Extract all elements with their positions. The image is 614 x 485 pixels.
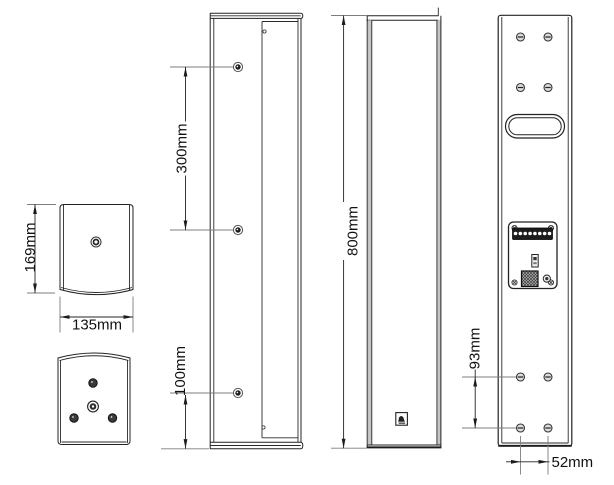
- side-back-panel: [262, 22, 298, 438]
- bottom-hole-icon: [89, 379, 97, 387]
- pilot-hole-icon: [262, 426, 265, 429]
- rear-screw-icon: [544, 33, 552, 41]
- mount-hole-icon: [91, 237, 101, 247]
- dim-135-label: 135mm: [72, 317, 122, 334]
- rear-screw-icon: [544, 84, 552, 92]
- top-view: 169mm 135mm: [22, 205, 133, 334]
- dim-100: 100mm: [172, 346, 189, 449]
- switch-connector: [532, 255, 538, 268]
- dim-93-label: 93mm: [467, 328, 484, 370]
- front-view: 800mm: [331, 8, 441, 449]
- connector-panel: [509, 222, 558, 289]
- front-right-wall: [437, 20, 441, 445]
- side-top-cap: [210, 13, 303, 18]
- dim-169-label: 169mm: [22, 222, 39, 272]
- rear-view: 93mm 52mm: [462, 15, 593, 474]
- dim-100-label: 100mm: [172, 346, 189, 396]
- rear-screw-icon: [517, 84, 525, 92]
- pilot-hole-icon: [263, 30, 266, 33]
- dim-800-label: 800mm: [345, 206, 362, 256]
- rear-screw-icon: [544, 424, 552, 432]
- dim-169: 169mm: [22, 205, 56, 294]
- logo-badge: [396, 413, 408, 426]
- bottom-hole-icon: [108, 414, 116, 422]
- rear-screw-icon: [544, 373, 552, 381]
- bottom-hole-icon: [70, 414, 78, 422]
- side-screw-icon: [233, 62, 242, 71]
- bottom-view: [58, 353, 130, 445]
- round-connector-icon: [543, 275, 550, 282]
- rear-screw-icon: [517, 373, 525, 381]
- panel-screw-icon: [512, 280, 517, 285]
- dim-300-label: 300mm: [174, 123, 191, 173]
- dim-800: 800mm: [342, 16, 362, 449]
- speakon-connector-icon: [522, 271, 539, 287]
- top-view-outline: [60, 205, 133, 295]
- rear-screw-icon: [517, 424, 525, 432]
- side-view: 300mm 100mm: [161, 13, 303, 449]
- dim-52-label: 52mm: [552, 454, 594, 471]
- dim-300: 300mm: [174, 67, 191, 230]
- terminal-strip: [513, 228, 553, 240]
- bottom-view-outline: [58, 353, 130, 445]
- dimension-drawing: 169mm 135mm: [0, 0, 614, 485]
- front-left-wall: [368, 20, 372, 445]
- side-bottom-cap: [210, 442, 303, 449]
- rear-screw-icon: [517, 33, 525, 41]
- dim-135: 135mm: [60, 297, 133, 334]
- side-screw-icon: [233, 225, 242, 234]
- pole-mount-hole-icon: [88, 401, 99, 412]
- side-screw-icon: [233, 388, 242, 397]
